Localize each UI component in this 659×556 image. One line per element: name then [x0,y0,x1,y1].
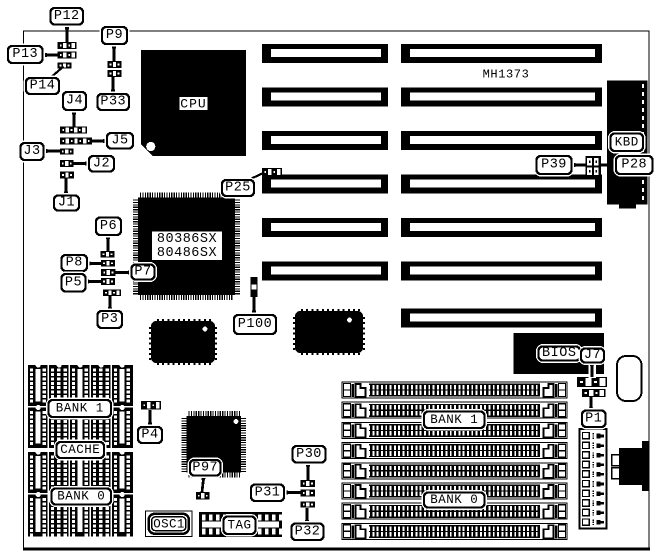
svg-text:BANK 0: BANK 0 [430,493,478,507]
svg-text:J7: J7 [584,348,601,363]
svg-text:P32: P32 [295,524,321,539]
svg-text:MH1373: MH1373 [483,68,530,82]
svg-text:P1: P1 [585,411,602,426]
svg-text:80386SX: 80386SX [157,232,217,247]
svg-text:P33: P33 [100,95,126,110]
svg-text:TAG: TAG [227,518,251,532]
svg-text:P30: P30 [296,447,322,462]
svg-text:P6: P6 [100,219,117,234]
svg-text:J2: J2 [93,156,110,171]
svg-text:P4: P4 [141,428,158,443]
svg-text:P3: P3 [101,312,118,327]
svg-text:J3: J3 [23,144,40,159]
svg-text:P25: P25 [225,181,251,196]
svg-text:P12: P12 [54,9,80,24]
svg-text:80486SX: 80486SX [157,246,217,261]
svg-text:P7: P7 [134,265,151,280]
svg-text:KBD: KBD [615,135,639,149]
svg-text:P14: P14 [30,79,56,94]
svg-text:BANK 0: BANK 0 [57,490,105,504]
svg-text:P9: P9 [106,28,123,43]
svg-text:CPU: CPU [180,97,206,112]
svg-text:P28: P28 [621,158,647,173]
svg-text:J1: J1 [58,196,75,211]
svg-text:OSC1: OSC1 [153,517,185,531]
svg-text:BIOS: BIOS [542,346,576,361]
svg-text:P97: P97 [192,460,218,475]
svg-text:P5: P5 [65,275,82,290]
svg-text:P100: P100 [238,317,272,332]
svg-text:P13: P13 [12,47,38,62]
svg-text:BANK 1: BANK 1 [56,402,104,416]
svg-text:P31: P31 [255,485,281,500]
svg-text:P39: P39 [541,158,567,173]
svg-text:J5: J5 [111,133,128,148]
svg-text:J4: J4 [66,94,83,109]
svg-text:CACHE: CACHE [60,443,100,457]
svg-text:P8: P8 [66,256,83,271]
svg-text:BANK 1: BANK 1 [430,413,478,427]
